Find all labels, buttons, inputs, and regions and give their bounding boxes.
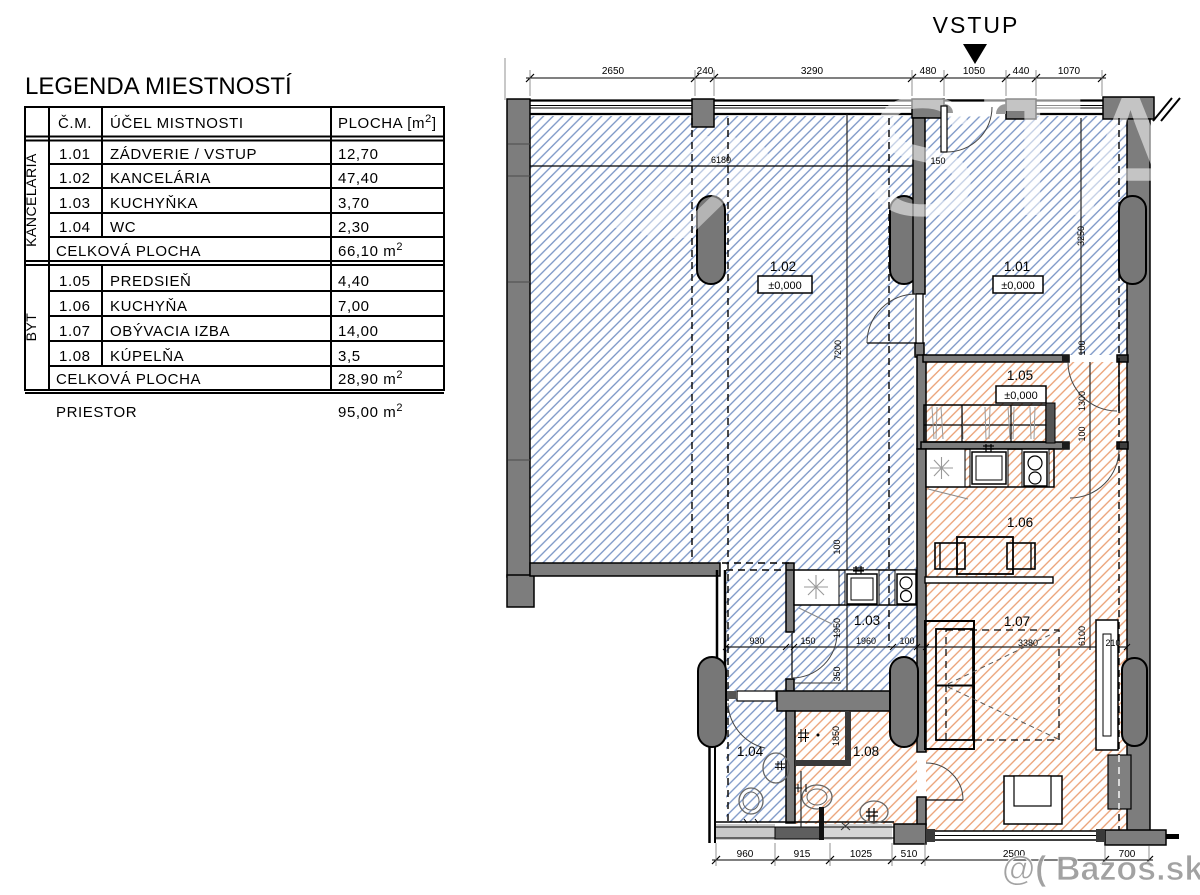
svg-text:480: 480 bbox=[920, 66, 937, 77]
svg-text:150: 150 bbox=[930, 156, 945, 166]
svg-text:2650: 2650 bbox=[602, 66, 625, 77]
svg-text:3250: 3250 bbox=[1076, 226, 1086, 246]
svg-text:12,70: 12,70 bbox=[338, 146, 379, 163]
svg-text:240: 240 bbox=[697, 66, 714, 77]
svg-text:ÚČEL MISTNOSTI: ÚČEL MISTNOSTI bbox=[110, 115, 244, 132]
svg-text:±0,000: ±0,000 bbox=[1001, 280, 1035, 292]
svg-text:1.07: 1.07 bbox=[59, 323, 91, 340]
svg-text:3290: 3290 bbox=[801, 66, 824, 77]
svg-text:WC: WC bbox=[110, 219, 136, 236]
svg-text:PRIESTOR: PRIESTOR bbox=[56, 404, 137, 421]
svg-text:±0,000: ±0,000 bbox=[768, 280, 802, 292]
svg-text:440: 440 bbox=[1013, 66, 1030, 77]
svg-text:1.01: 1.01 bbox=[1004, 259, 1030, 274]
svg-text:4,40: 4,40 bbox=[338, 273, 370, 290]
svg-text:1.05: 1.05 bbox=[59, 273, 91, 290]
svg-text:KANCELÁRIA: KANCELÁRIA bbox=[23, 153, 39, 247]
svg-text:915: 915 bbox=[794, 849, 811, 860]
svg-text:1.08: 1.08 bbox=[59, 348, 91, 365]
svg-text:BYT: BYT bbox=[23, 313, 39, 342]
svg-text:KÚPELŇA: KÚPELŇA bbox=[110, 348, 184, 365]
svg-text:14,00: 14,00 bbox=[338, 323, 379, 340]
svg-text:100: 100 bbox=[899, 636, 914, 646]
svg-text:1300: 1300 bbox=[1077, 391, 1087, 411]
svg-text:PREDSIEŇ: PREDSIEŇ bbox=[110, 273, 192, 290]
svg-text:Č.M.: Č.M. bbox=[58, 115, 92, 132]
svg-text:7200: 7200 bbox=[833, 340, 843, 360]
svg-text:2,30: 2,30 bbox=[338, 219, 370, 236]
svg-text:1.06: 1.06 bbox=[59, 298, 91, 315]
svg-text:CELKOVÁ PLOCHA: CELKOVÁ PLOCHA bbox=[56, 243, 201, 260]
svg-text:1.05: 1.05 bbox=[1007, 368, 1033, 383]
svg-text:100: 100 bbox=[832, 539, 842, 554]
svg-text:1850: 1850 bbox=[831, 726, 841, 746]
svg-text:KUCHYŇKA: KUCHYŇKA bbox=[110, 195, 198, 212]
svg-text:LEGENDA MIESTNOSTÍ: LEGENDA MIESTNOSTÍ bbox=[25, 73, 292, 100]
svg-text:1.03: 1.03 bbox=[59, 195, 91, 212]
svg-text:KANCELÁRIA: KANCELÁRIA bbox=[110, 170, 211, 187]
svg-text:6100: 6100 bbox=[1077, 626, 1087, 646]
svg-text:100: 100 bbox=[1077, 426, 1087, 441]
svg-text:CELKOVÁ PLOCHA: CELKOVÁ PLOCHA bbox=[56, 371, 201, 388]
svg-text:1070: 1070 bbox=[1058, 66, 1081, 77]
svg-text:1.02: 1.02 bbox=[770, 259, 796, 274]
svg-text:1.04: 1.04 bbox=[737, 744, 764, 759]
svg-text:1.01: 1.01 bbox=[59, 146, 91, 163]
svg-text:150: 150 bbox=[800, 636, 815, 646]
svg-text:1050: 1050 bbox=[963, 66, 986, 77]
svg-text:1025: 1025 bbox=[850, 849, 873, 860]
svg-text:@( Bazos.sk: @( Bazos.sk bbox=[1002, 850, 1200, 888]
svg-text:66,10 m2: 66,10 m2 bbox=[338, 241, 403, 260]
svg-text:350: 350 bbox=[832, 666, 842, 681]
svg-text:ZÁDVERIE / VSTUP: ZÁDVERIE / VSTUP bbox=[110, 146, 257, 163]
svg-text:STARS: STARS bbox=[865, 62, 1200, 252]
svg-text:VSTUP: VSTUP bbox=[933, 12, 1020, 38]
svg-text:3,70: 3,70 bbox=[338, 195, 370, 212]
svg-text:1960: 1960 bbox=[856, 636, 876, 646]
svg-text:7,00: 7,00 bbox=[338, 298, 370, 315]
svg-text:1.06: 1.06 bbox=[1007, 515, 1033, 530]
svg-text:KUCHYŇA: KUCHYŇA bbox=[110, 298, 188, 315]
svg-text:1.03: 1.03 bbox=[854, 613, 880, 628]
svg-text:47,40: 47,40 bbox=[338, 170, 379, 187]
svg-text:1.07: 1.07 bbox=[1004, 614, 1030, 629]
svg-text:210: 210 bbox=[1105, 638, 1120, 648]
svg-text:OBÝVACIA IZBA: OBÝVACIA IZBA bbox=[110, 323, 230, 340]
svg-text:95,00 m2: 95,00 m2 bbox=[338, 402, 403, 421]
svg-text:28,90 m2: 28,90 m2 bbox=[338, 369, 403, 388]
svg-text:960: 960 bbox=[737, 849, 754, 860]
svg-text:1.08: 1.08 bbox=[853, 744, 879, 759]
svg-text:1.04: 1.04 bbox=[59, 219, 91, 236]
svg-text:3380: 3380 bbox=[1018, 638, 1038, 648]
svg-text:1.02: 1.02 bbox=[59, 170, 91, 187]
svg-text:930: 930 bbox=[749, 636, 764, 646]
svg-text:1950: 1950 bbox=[832, 618, 842, 638]
svg-text:100: 100 bbox=[1077, 340, 1087, 355]
svg-text:PLOCHA [m2]: PLOCHA [m2] bbox=[338, 113, 437, 132]
svg-text:3,5: 3,5 bbox=[338, 348, 361, 365]
svg-text:±0,000: ±0,000 bbox=[1004, 390, 1038, 402]
svg-text:6180: 6180 bbox=[711, 155, 731, 165]
svg-text:510: 510 bbox=[901, 849, 918, 860]
